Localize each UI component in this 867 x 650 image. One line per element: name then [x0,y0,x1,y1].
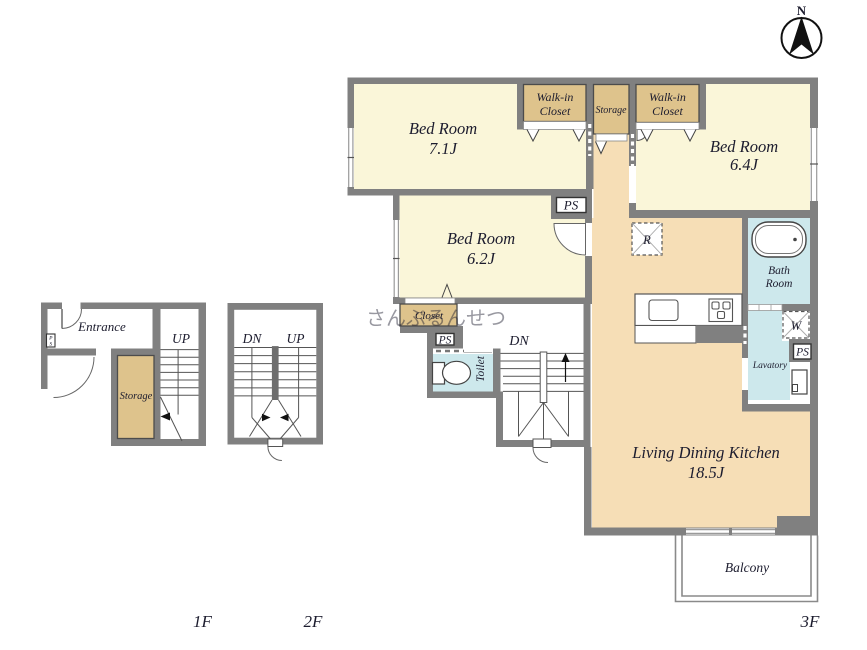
svg-text:2F: 2F [304,612,324,631]
svg-text:さんぷるんせつ: さんぷるんせつ [366,308,506,330]
svg-text:Balcony: Balcony [725,560,769,575]
svg-text:UP: UP [287,331,305,346]
svg-text:S: S [49,342,52,348]
svg-text:Storage: Storage [595,105,627,116]
svg-text:PS: PS [438,335,452,347]
svg-text:6.4J: 6.4J [730,155,759,174]
svg-text:18.5J: 18.5J [688,463,725,482]
svg-text:R: R [642,233,651,247]
svg-text:Closet: Closet [652,104,683,118]
svg-text:Entrance: Entrance [77,319,126,334]
svg-text:Room: Room [765,278,793,290]
svg-text:6.2J: 6.2J [467,249,496,268]
svg-text:Toilet: Toilet [475,355,487,382]
svg-text:UP: UP [172,331,190,346]
svg-text:N: N [797,3,807,18]
svg-text:7.1J: 7.1J [429,139,458,158]
svg-text:PS: PS [795,347,809,359]
svg-text:Closet: Closet [540,104,571,118]
svg-text:Living Dining Kitchen: Living Dining Kitchen [631,443,780,462]
svg-text:Walk-in: Walk-in [537,90,574,104]
svg-text:W: W [791,319,803,333]
svg-text:Bath: Bath [768,265,790,277]
svg-text:Lavatory: Lavatory [752,361,788,371]
svg-text:Storage: Storage [120,391,153,402]
svg-text:3F: 3F [800,612,821,631]
svg-text:PS: PS [563,198,579,213]
svg-text:Bed Room: Bed Room [409,119,477,138]
svg-text:Bed Room: Bed Room [447,229,515,248]
svg-text:Walk-in: Walk-in [649,90,686,104]
svg-text:Bed Room: Bed Room [710,137,778,156]
svg-text:DN: DN [508,334,529,349]
svg-text:1F: 1F [193,612,213,631]
svg-text:DN: DN [242,331,263,346]
